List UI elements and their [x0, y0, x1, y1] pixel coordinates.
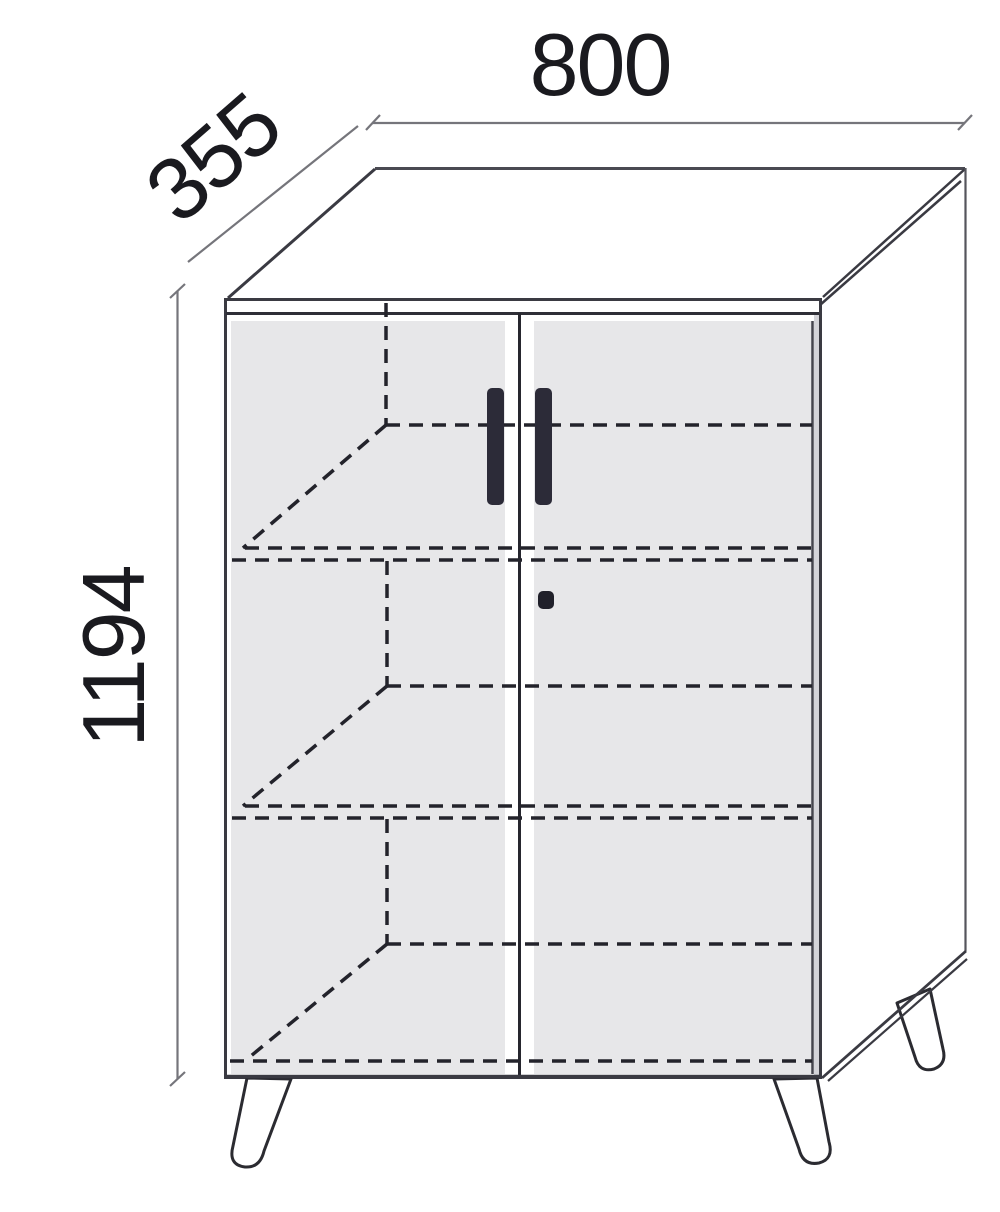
top-right-diagonal-outer	[823, 169, 965, 297]
left-door-handle	[487, 388, 504, 505]
width-dimension-label: 800	[530, 15, 671, 114]
cabinet-dimension-diagram: 800 355 1194	[0, 0, 1000, 1212]
cabinet-front-face	[226, 300, 821, 1078]
top-right-diagonal-inner	[820, 181, 961, 305]
cabinet-top-face	[228, 169, 965, 306]
front-right-leg	[774, 1078, 830, 1163]
right-door-handle	[535, 388, 552, 505]
front-left-leg	[232, 1078, 291, 1167]
diagram-canvas: 800 355 1194	[0, 0, 1000, 1212]
keyhole-icon	[538, 591, 554, 609]
side-bottom-edge-inner	[828, 959, 967, 1081]
depth-dimension-label: 355	[127, 74, 298, 241]
right-corner-stripe	[814, 315, 819, 1075]
height-dimension-label: 1194	[64, 566, 163, 747]
